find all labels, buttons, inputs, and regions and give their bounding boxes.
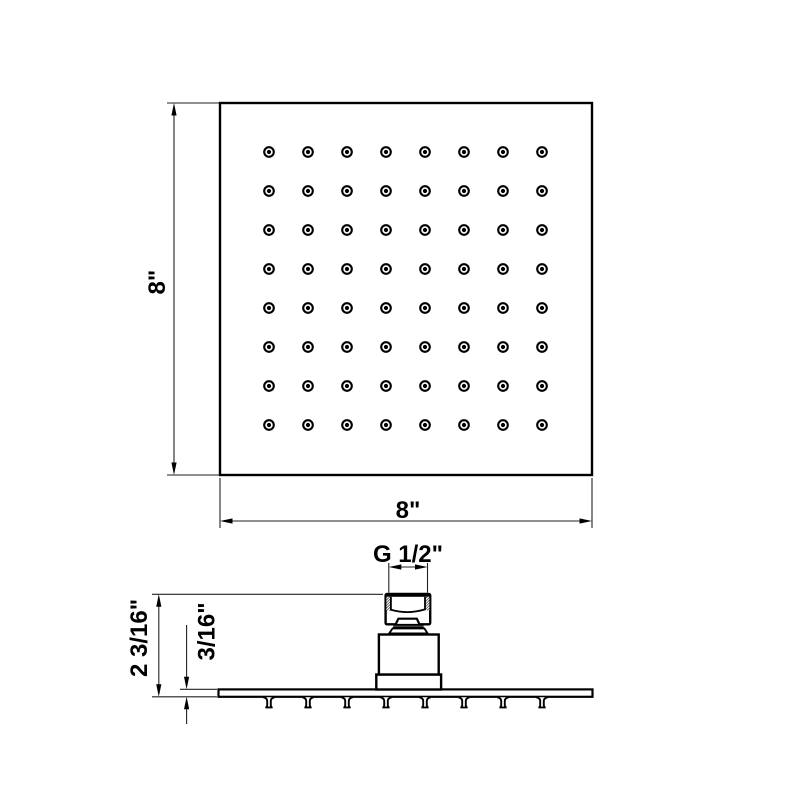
svg-text:2 3/16": 2 3/16" xyxy=(126,599,153,677)
svg-text:8": 8" xyxy=(144,270,171,295)
svg-text:3/16": 3/16" xyxy=(194,602,221,660)
svg-text:8": 8" xyxy=(396,497,421,524)
svg-text:G 1/2": G 1/2" xyxy=(373,541,443,568)
